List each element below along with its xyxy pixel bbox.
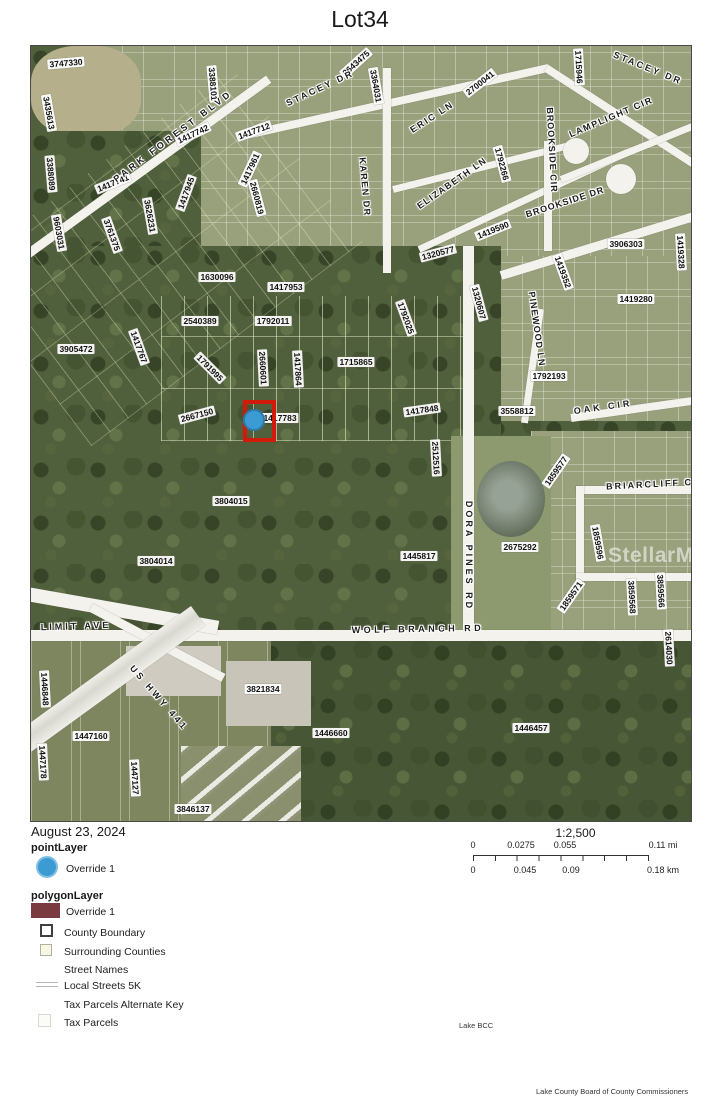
parcel-label: 1859596 [590, 524, 606, 562]
parcel-label: 3906303 [607, 239, 644, 249]
parcel-label: 3435613 [41, 94, 57, 132]
map-date: August 23, 2024 [31, 824, 126, 839]
legend-tax-parcels-label: Tax Parcels [64, 1017, 118, 1029]
parcel-label: 1417953 [267, 282, 304, 292]
parcel-label: 1417864 [292, 350, 304, 388]
legend-surrounding-counties-label: Surrounding Counties [64, 946, 166, 958]
point-override-marker [243, 409, 265, 431]
tax-parcels-symbol [38, 1014, 51, 1027]
street-label: BRIARCLIFF CIR [606, 476, 692, 491]
parcel-label: 3846137 [174, 804, 211, 814]
page-title: Lot34 [0, 6, 720, 33]
parcel-label: 1715865 [337, 357, 374, 367]
parcel-label: 1446660 [312, 728, 349, 738]
parcel-label: 1417767 [128, 328, 150, 366]
parcel-label: 1419352 [552, 253, 574, 291]
scale-km-3: 0.18 km [647, 865, 679, 875]
credit-footer: Lake County Board of County Commissioner… [536, 1087, 688, 1096]
street-label: LAMPLIGHT CIR [568, 95, 655, 139]
parcel-label: 1419590 [474, 218, 512, 241]
scale-bar [473, 855, 649, 861]
legend-point-override-label: Override 1 [66, 863, 115, 875]
parcel-label: 1792011 [255, 316, 292, 326]
legend-polygon-layer-heading: polygonLayer [31, 890, 103, 902]
polygon-override-symbol [31, 903, 60, 918]
parcel-label: 1859577 [541, 453, 570, 489]
scale-ratio: 1:2,500 [488, 826, 663, 840]
parcel-label: 1446848 [39, 670, 51, 708]
parcel-label: 1792193 [530, 371, 567, 381]
street-label: BROOKSIDE DR [524, 185, 605, 220]
scale-km-1: 0.045 [514, 865, 537, 875]
parcel-label: 2614030 [663, 629, 675, 667]
parcel-label: 3388089 [44, 155, 57, 193]
parcel-label: 2540389 [181, 316, 218, 326]
scale-mi-2: 0.055 [554, 840, 577, 850]
parcel-label: 3859566 [655, 572, 667, 610]
parcel-label: 1447160 [72, 731, 109, 741]
parcel-label: 3626231 [142, 197, 158, 235]
street-label: ERIC LN [408, 99, 455, 135]
parcel-label: 1792266 [492, 145, 511, 183]
parcel-label: 3747330 [47, 56, 85, 69]
scale-mi-3: 0.11 mi [649, 840, 678, 850]
legend-county-boundary-label: County Boundary [64, 927, 145, 939]
street-label: STACEY DR [612, 50, 684, 87]
scale-mi-1: 0.0275 [507, 840, 535, 850]
scale-km-0: 0 [470, 865, 475, 875]
map-viewport: 3747330343561333881011417742141771236434… [30, 45, 692, 822]
scale-mi-0: 0 [470, 840, 475, 850]
parcel-label: 3905472 [57, 344, 94, 354]
parcel-label: 1859571 [556, 578, 585, 614]
parcel-label: 9603031 [51, 214, 67, 252]
legend-street-names-label: Street Names [64, 964, 128, 976]
local-streets-symbol [36, 982, 58, 987]
parcel-label: 1320607 [469, 284, 488, 322]
point-override-symbol [36, 856, 58, 878]
parcel-label: 3364031 [368, 67, 384, 105]
parcel-label: 2700041 [462, 68, 497, 99]
mls-watermark: StellarMLS [608, 544, 692, 568]
legend-point-layer-heading: pointLayer [31, 842, 87, 854]
scale-km-2: 0.09 [562, 865, 580, 875]
legend-tax-parcels-alt-label: Tax Parcels Alternate Key [64, 999, 184, 1011]
parcel-label: 3761375 [101, 216, 123, 254]
parcel-label: 1791995 [193, 351, 226, 384]
street-label: KAREN DR [357, 157, 372, 217]
legend-polygon-override-label: Override 1 [66, 906, 115, 918]
street-label: PARK FOREST BLVD [112, 88, 235, 184]
map-report-page: Lot34 [0, 0, 720, 1113]
legend-local-streets-label: Local Streets 5K [64, 980, 141, 992]
parcel-label: 1419280 [617, 294, 654, 304]
street-label: STACEY DR [284, 68, 355, 108]
credit-lake-bcc: Lake BCC [459, 1021, 493, 1030]
parcel-label: 3804015 [212, 496, 249, 506]
county-boundary-symbol [40, 924, 53, 937]
parcel-label: 1419328 [675, 233, 687, 271]
parcel-label: 2667150 [178, 405, 216, 424]
parcel-label: 2675292 [501, 542, 538, 552]
street-label: WOLF BRANCH RD [352, 623, 485, 635]
parcel-label: 1417712 [235, 120, 273, 142]
parcel-label: 1417945 [175, 174, 197, 212]
parcel-label: 2660601 [257, 349, 269, 387]
parcel-label: 2660819 [247, 179, 266, 217]
parcel-label: 1715946 [573, 48, 585, 86]
parcel-label: 1447127 [129, 759, 141, 797]
street-label: US HWY 441 [128, 663, 190, 732]
street-label: PINEWOOD LN [527, 291, 547, 367]
parcel-label: 3821834 [244, 684, 281, 694]
parcel-label: 1630096 [198, 272, 235, 282]
street-label: BROOKSIDE CIR [545, 107, 559, 193]
parcel-label: 1447178 [37, 743, 49, 781]
parcel-label: 1320577 [419, 243, 457, 262]
parcel-label: 3804014 [137, 556, 174, 566]
parcel-label: 3859568 [626, 578, 638, 616]
surrounding-counties-symbol [40, 944, 52, 956]
street-label: OAK CIR [573, 398, 633, 416]
parcel-label: 1445817 [400, 551, 437, 561]
parcel-label: 1446457 [512, 723, 549, 733]
street-label: LIMIT AVE [41, 620, 112, 632]
map-labels: 3747330343561333881011417742141771236434… [31, 46, 691, 821]
parcel-label: 1417848 [403, 402, 441, 417]
parcel-label: 1792025 [395, 299, 417, 337]
parcel-label: 2512516 [430, 439, 442, 477]
street-label: ELIZABETH LN [415, 155, 489, 211]
street-label: DORA PINES RD [464, 501, 474, 611]
parcel-label: 3558812 [498, 406, 535, 416]
